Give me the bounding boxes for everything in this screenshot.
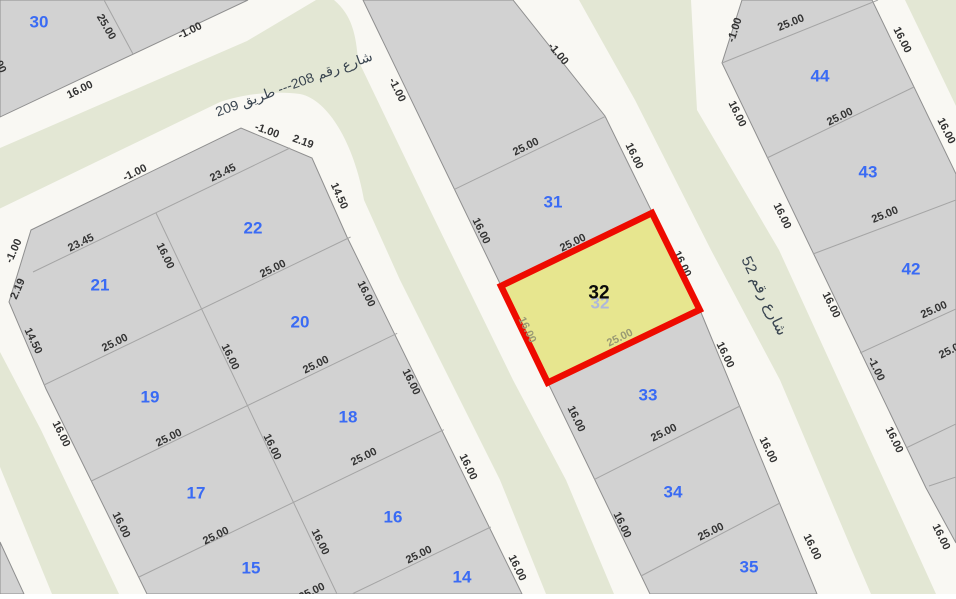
svg-text:33: 33 xyxy=(639,386,658,405)
svg-text:34: 34 xyxy=(664,483,683,502)
svg-text:17: 17 xyxy=(187,484,206,503)
svg-text:31: 31 xyxy=(544,193,563,212)
svg-text:35: 35 xyxy=(740,558,759,577)
svg-text:43: 43 xyxy=(859,163,878,182)
svg-text:15: 15 xyxy=(242,559,261,578)
svg-text:22: 22 xyxy=(244,219,263,238)
svg-text:14: 14 xyxy=(453,568,472,587)
svg-text:21: 21 xyxy=(91,276,110,295)
svg-text:42: 42 xyxy=(902,260,921,279)
svg-text:20: 20 xyxy=(291,313,310,332)
svg-text:30: 30 xyxy=(30,13,49,32)
svg-text:32: 32 xyxy=(588,283,609,304)
svg-text:16: 16 xyxy=(384,508,403,527)
svg-text:44: 44 xyxy=(811,67,830,86)
svg-text:18: 18 xyxy=(339,408,358,427)
svg-text:19: 19 xyxy=(141,388,160,407)
